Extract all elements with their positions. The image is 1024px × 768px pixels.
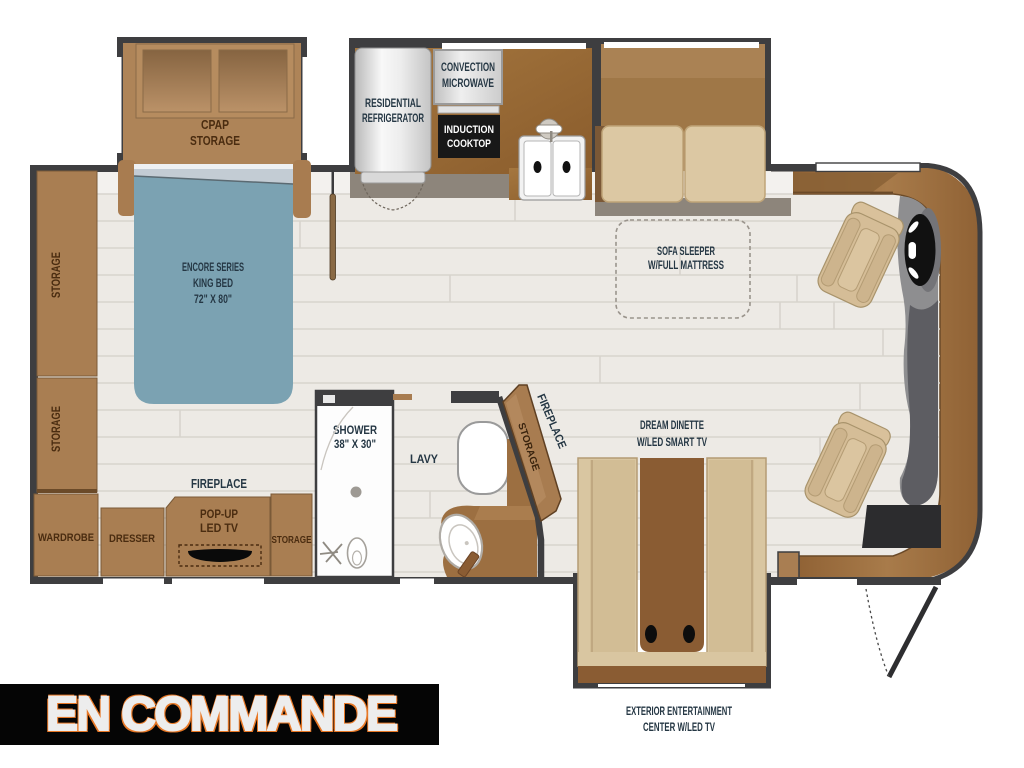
- svg-text:KING BED: KING BED: [193, 278, 233, 290]
- svg-text:STORAGE: STORAGE: [51, 406, 63, 452]
- svg-text:SHOWER: SHOWER: [333, 425, 378, 437]
- svg-text:CPAP: CPAP: [201, 117, 229, 132]
- svg-text:W/LED SMART TV: W/LED SMART TV: [637, 437, 707, 449]
- svg-text:CENTER W/LED TV: CENTER W/LED TV: [643, 722, 715, 734]
- svg-text:W/FULL MATTRESS: W/FULL MATTRESS: [648, 260, 724, 272]
- svg-text:WARDROBE: WARDROBE: [38, 532, 94, 544]
- svg-text:LAVY: LAVY: [410, 454, 438, 466]
- svg-text:STORAGE: STORAGE: [51, 252, 63, 298]
- svg-text:REFRIGERATOR: REFRIGERATOR: [362, 113, 424, 125]
- svg-text:DRESSER: DRESSER: [109, 533, 155, 545]
- svg-text:FIREPLACE: FIREPLACE: [191, 477, 247, 491]
- svg-text:38" X 30": 38" X 30": [334, 439, 376, 451]
- svg-text:ENCORE SERIES: ENCORE SERIES: [182, 262, 244, 274]
- svg-text:RESIDENTIAL: RESIDENTIAL: [365, 98, 421, 110]
- svg-text:POP-UP: POP-UP: [200, 507, 238, 521]
- svg-text:72" X 80": 72" X 80": [194, 294, 232, 306]
- svg-text:STORAGE: STORAGE: [190, 133, 240, 148]
- svg-text:INDUCTION: INDUCTION: [444, 124, 494, 136]
- svg-text:SOFA SLEEPER: SOFA SLEEPER: [657, 246, 715, 258]
- svg-text:STORAGE: STORAGE: [272, 534, 312, 546]
- svg-text:COOKTOP: COOKTOP: [447, 138, 491, 150]
- svg-text:EXTERIOR ENTERTAINMENT: EXTERIOR ENTERTAINMENT: [626, 706, 732, 718]
- svg-text:LED TV: LED TV: [200, 521, 238, 535]
- svg-text:CONVECTION: CONVECTION: [441, 62, 495, 74]
- svg-text:MICROWAVE: MICROWAVE: [442, 78, 494, 90]
- svg-text:DREAM DINETTE: DREAM DINETTE: [640, 420, 704, 432]
